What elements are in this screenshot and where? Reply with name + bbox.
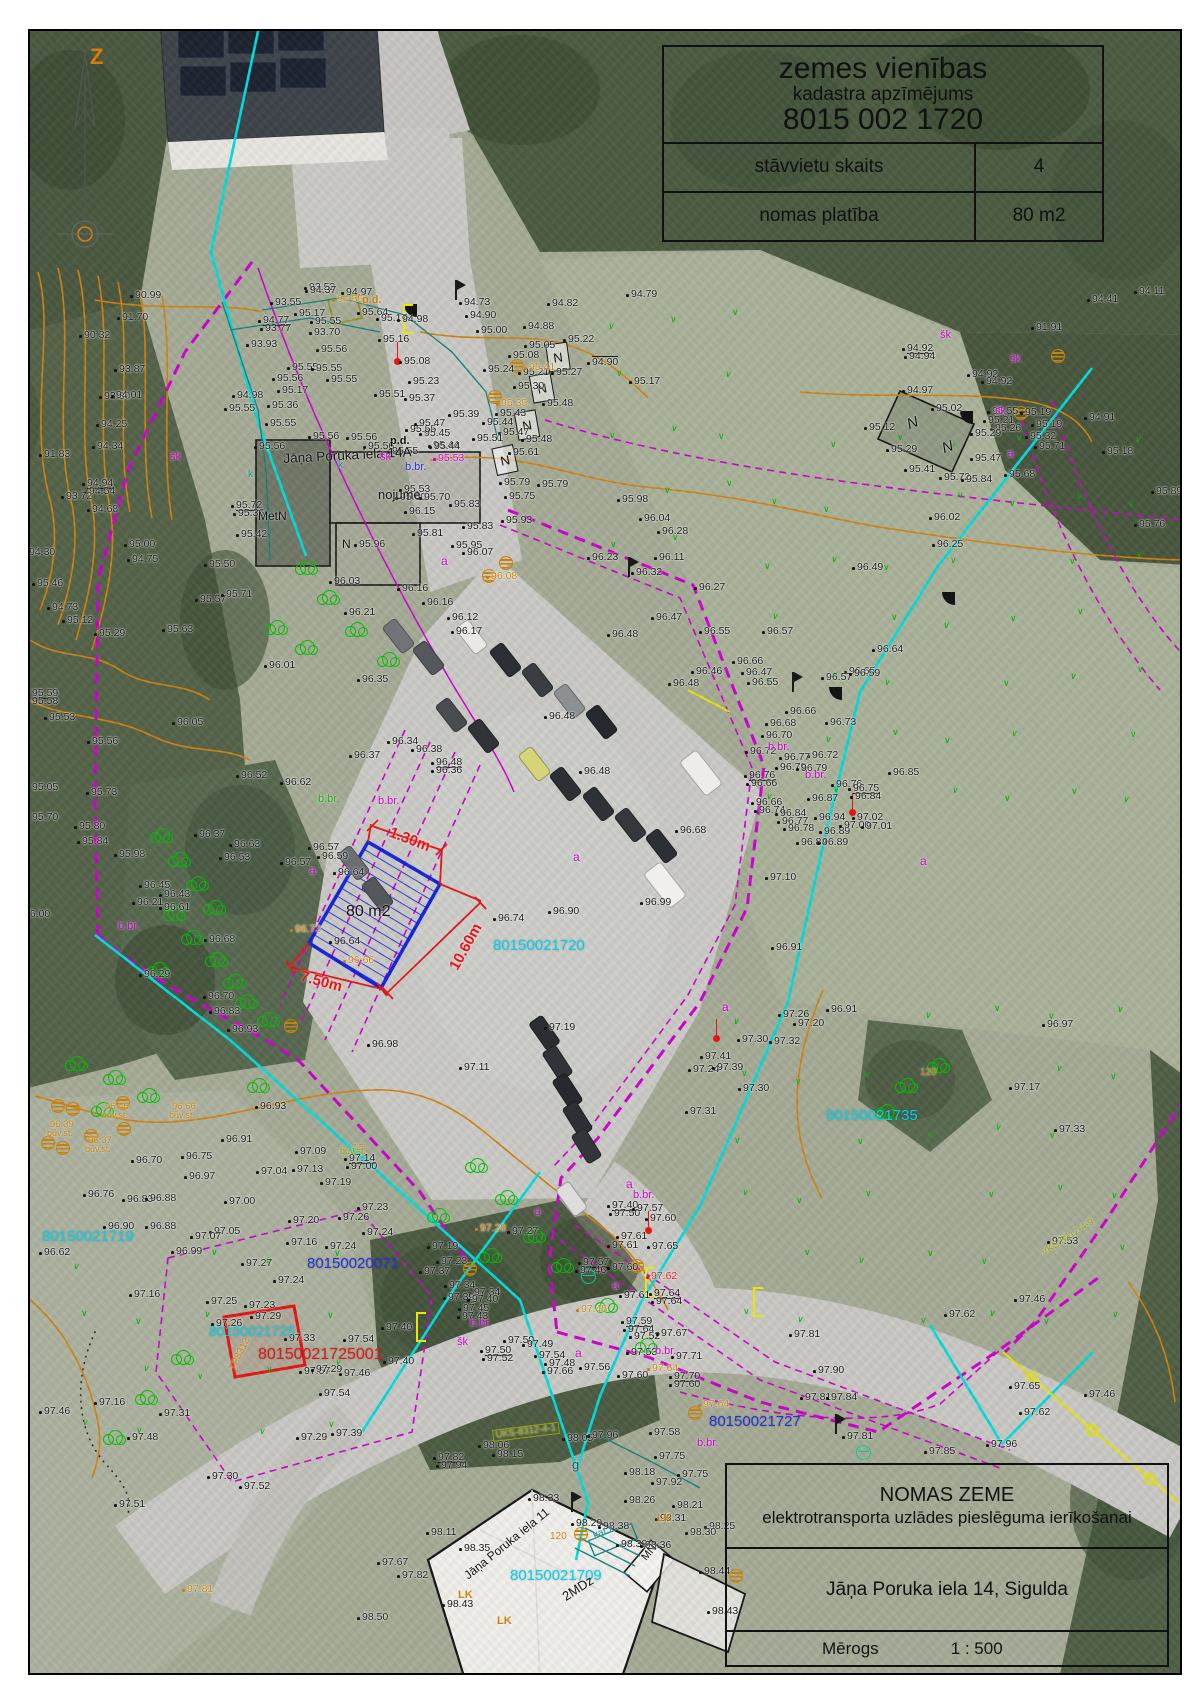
map-text-label: a — [626, 1178, 633, 1190]
elevation-label: 98.11 — [431, 1527, 457, 1537]
elevation-label: 95.08 — [404, 356, 430, 366]
elevation-label: 94.68 — [92, 504, 118, 514]
map-text-label: būv.st. — [102, 1111, 128, 1120]
elevation-label: 96.52 — [241, 770, 267, 780]
map-text-label: b.br. — [318, 794, 339, 805]
elevation-label: 97.31 — [690, 1106, 716, 1116]
elevation-label: 97.26 — [343, 1212, 369, 1222]
map-text-label: LK — [458, 1590, 473, 1601]
elevation-label: 97.92 — [656, 1477, 682, 1487]
elevation-label: 96.93 — [232, 1024, 258, 1034]
info-purpose-line1: NOMAS ZEME — [880, 1483, 1014, 1507]
elevation-label: 97.81 — [847, 1431, 873, 1441]
elevation-label: 93.70 — [314, 327, 340, 337]
map-text-label: būv.st. — [169, 1111, 195, 1120]
elevation-label: 97.39 — [717, 1062, 743, 1072]
map-text-label: b.br. — [768, 742, 789, 753]
elevation-label: 90.99 — [135, 290, 161, 300]
map-text-label: šk — [457, 1337, 468, 1348]
elevation-label: 97.49 — [527, 1339, 553, 1349]
elevation-label: 96.70 — [208, 991, 234, 1001]
elevation-label: 98.21 — [677, 1500, 703, 1510]
map-text-label: UKS-8312-4-1 — [492, 1422, 560, 1442]
cadastral-map-sheet: ∨∨∨∨∨∨∨∨∨∨∨∨∨∨∨∨∨∨∨∨∨∨∨∨∨∨∨∨∨∨∨∨∨∨∨∨∨∨∨∨… — [0, 0, 1190, 1683]
elevation-label: 93.55 — [275, 297, 301, 307]
elevation-label: 96.91 — [776, 942, 802, 952]
elevation-label: 97.29 — [301, 1432, 327, 1442]
elevation-label: 95.63 — [167, 624, 193, 634]
elevation-label: 95.36 — [272, 400, 298, 410]
elevation-label: 96.94 — [819, 812, 845, 822]
title-line1: zemes vienības — [779, 54, 987, 84]
elevation-label: 97.19 — [432, 1241, 458, 1251]
title-block-header: zemes vienības kadastra apzīmējums 8015 … — [664, 47, 1102, 144]
elevation-label: 94.41 — [1092, 294, 1118, 304]
elevation-label: 97.81 — [187, 1584, 213, 1594]
elevation-label: 94.55 — [337, 294, 363, 304]
elevation-label: 96.49 — [857, 562, 883, 572]
elevation-label: 97.01 — [866, 821, 892, 831]
elevation-label: 96.93 — [260, 1101, 286, 1111]
elevation-label: 95.84 — [966, 474, 992, 484]
elevation-label: 96.07 — [467, 547, 493, 557]
elevation-label: 95.56 — [313, 431, 339, 441]
elevation-label: 96.59 — [854, 668, 880, 678]
elevation-label: 96.23 — [592, 552, 618, 562]
elevation-label: 97.94 — [441, 1460, 467, 1470]
elevation-label: 97.67 — [661, 1328, 687, 1338]
elevation-label: 97.96 — [991, 1439, 1017, 1449]
elevation-label: 98.26 — [629, 1495, 655, 1505]
elevation-label: 97.40 — [388, 1356, 414, 1366]
elevation-label: 96.74 — [498, 913, 524, 923]
elevation-label: 94.54 — [89, 486, 115, 496]
elevation-label: 96.32 — [636, 567, 662, 577]
map-text-label: a — [920, 855, 927, 867]
elevation-label: 95.18 — [1107, 446, 1133, 456]
elevation-label: 97.17 — [1014, 1082, 1040, 1092]
elevation-label: 96.97 — [1047, 1019, 1073, 1029]
elevation-label: 96.15 — [409, 506, 435, 516]
elevation-label: 97.23 — [249, 1300, 275, 1310]
parcel-label: 80150021720 — [493, 938, 585, 953]
elevation-label: 95.19 — [1036, 419, 1062, 429]
elevation-label: 95.44 — [434, 441, 460, 451]
elevation-label: 95.55 — [292, 362, 318, 372]
map-labels-layer: 90.9993.5290.3291.7093.7093.3093.8794.01… — [28, 29, 1182, 1675]
elevation-label: 96.66 — [751, 778, 777, 788]
elevation-label: 96.64 — [877, 644, 903, 654]
elevation-label: 97.52 — [244, 1481, 270, 1491]
elevation-label: 96.62 — [285, 777, 311, 787]
elevation-label: 95.73 — [91, 787, 117, 797]
map-text-label: b.br. — [697, 1438, 718, 1449]
elevation-label: 95.55 — [331, 374, 357, 384]
elevation-label: 97.32 — [774, 1036, 800, 1046]
elevation-label: 95.51 — [477, 433, 503, 443]
map-text-label: MetN — [258, 510, 287, 522]
elevation-label: 95.83 — [467, 521, 493, 531]
elevation-label: 96.70 — [136, 1155, 162, 1165]
elevation-label: 91.70 — [122, 312, 148, 322]
elevation-label: 97.62 — [651, 1271, 677, 1281]
elevation-label: 96.88 — [150, 1221, 176, 1231]
elevation-label: 98.30 — [690, 1527, 716, 1537]
elevation-label: 97.62 — [1024, 1407, 1050, 1417]
elevation-label: 95.98 — [119, 849, 145, 859]
elevation-label: 95.96 — [359, 539, 385, 549]
elevation-label: 98.32 — [621, 1539, 647, 1549]
elevation-label: 96.76 — [88, 1189, 114, 1199]
map-text-label: a — [441, 555, 448, 567]
elevation-label: 96.66 — [790, 706, 816, 716]
map-text-label: būv.st. — [340, 1147, 366, 1156]
elevation-label: 96.11 — [659, 552, 685, 562]
elevation-label: 91.91 — [1036, 322, 1062, 332]
elevation-label: 97.10 — [770, 872, 796, 882]
elevation-label: 97.54 — [348, 1334, 374, 1344]
elevation-label: 94.34 — [97, 441, 123, 451]
elevation-label: 96.83 — [214, 1006, 240, 1016]
map-text-label: a — [722, 1001, 729, 1013]
map-text-label: b.br. — [470, 1318, 491, 1329]
map-text-label: LK — [497, 1616, 512, 1627]
info-purpose-line2: elektrotransporta uzlādes pieslēguma ier… — [762, 1507, 1131, 1529]
elevation-label: 95.84 — [82, 836, 108, 846]
elevation-label: 95.56 — [92, 736, 118, 746]
elevation-label: 95.12 — [67, 615, 93, 625]
elevation-label: 94.91 — [1089, 412, 1115, 422]
elevation-label: 94.97 — [907, 385, 933, 395]
elevation-label: 96.73 — [295, 924, 321, 934]
elevation-label: 97.90 — [818, 1365, 844, 1375]
elevation-label: 96.99 — [176, 1246, 202, 1256]
elevation-label: 96.21 — [349, 607, 375, 617]
elevation-label: 96.47 — [656, 612, 682, 622]
elevation-label: 96.25 — [937, 539, 963, 549]
elevation-label: 97.71 — [676, 1351, 702, 1361]
elevation-label: 95.02 — [936, 403, 962, 413]
map-frame: ∨∨∨∨∨∨∨∨∨∨∨∨∨∨∨∨∨∨∨∨∨∨∨∨∨∨∨∨∨∨∨∨∨∨∨∨∨∨∨∨… — [28, 29, 1182, 1675]
elevation-label: 95.53 — [49, 712, 75, 722]
elevation-label: 95.29 — [99, 628, 125, 638]
elevation-label: 97.45 — [581, 1304, 607, 1314]
elevation-label: 95.27 — [556, 367, 582, 377]
elevation-label: 97.46 — [580, 1265, 606, 1275]
elevation-label: 95.79 — [504, 477, 530, 487]
map-text-label: LK — [657, 1513, 672, 1524]
elevation-label: 97.31 — [164, 1408, 190, 1418]
elevation-label: 95.29 — [975, 428, 1001, 438]
scale-label: Mērogs — [822, 1639, 879, 1659]
elevation-label: 96.70 — [766, 730, 792, 740]
elevation-label: 97.04 — [261, 1166, 287, 1176]
elevation-label: 95.48 — [526, 434, 552, 444]
elevation-label: 95.08 — [513, 350, 539, 360]
elevation-label: 94.73 — [52, 602, 78, 612]
info-purpose: NOMAS ZEME elektrotransporta uzlādes pie… — [727, 1465, 1167, 1549]
elevation-label: 94.98 — [402, 314, 428, 324]
elevation-label: 94.88 — [528, 321, 554, 331]
elevation-label: 95.22 — [568, 334, 594, 344]
elevation-label: 95.47 — [419, 418, 445, 428]
elevation-label: 95.51 — [379, 389, 405, 399]
elevation-label: 94.79 — [631, 289, 657, 299]
elevation-label: 97.85 — [929, 1446, 955, 1456]
elevation-label: 97.39 — [448, 1292, 474, 1302]
elevation-label: 96.01 — [269, 660, 295, 670]
map-text-label: TP8312 — [228, 1337, 252, 1373]
map-text-label: VKS-8312-4-9 — [1040, 1217, 1096, 1258]
elevation-label: 96.68 — [770, 718, 796, 728]
elevation-label: 93.77 — [265, 323, 291, 333]
map-text-label: a — [534, 1205, 541, 1217]
elevation-label: 98.15 — [497, 1449, 523, 1459]
elevation-label: 97.24 — [330, 1241, 356, 1251]
elevation-label: 94.90 — [470, 310, 496, 320]
elevation-label: 95.23 — [413, 376, 439, 386]
elevation-label: 97.41 — [705, 1051, 731, 1061]
elevation-label: 96.04 — [644, 513, 670, 523]
elevation-label: 95.17 — [634, 376, 660, 386]
elevation-label: 97.16 — [134, 1289, 160, 1299]
elevation-label: 96.48 — [549, 711, 575, 721]
elevation-label: 97.20 — [293, 1215, 319, 1225]
elevation-label: 95.42 — [241, 529, 267, 539]
cadastral-number: 8015 002 1720 — [783, 105, 983, 135]
elevation-label: 93.72 — [66, 491, 92, 501]
map-text-label: N — [342, 538, 351, 550]
elevation-label: 97.39 — [336, 1428, 362, 1438]
parking-count-value: 4 — [974, 144, 1102, 191]
elevation-label: 95.37 — [409, 393, 435, 403]
elevation-label: 95.50 — [209, 559, 235, 569]
lease-area-label: nomas platība — [664, 193, 974, 240]
elevation-label: 98.18 — [629, 1467, 655, 1477]
elevation-label: 96.37 — [354, 750, 380, 760]
elevation-label: 97.51 — [119, 1499, 145, 1509]
map-text-label: a — [575, 1347, 582, 1359]
elevation-label: 97.48 — [132, 1432, 158, 1442]
elevation-label: 96.48 — [584, 766, 610, 776]
map-text-label: šk — [1010, 354, 1021, 365]
elevation-label: 97.00 — [229, 1196, 255, 1206]
elevation-label: 93.87 — [119, 364, 145, 374]
map-text-label: šk — [380, 452, 391, 463]
elevation-label: 97.54 — [324, 1388, 350, 1398]
elevation-label: 97.20 — [798, 1018, 824, 1028]
elevation-label: 95.56 — [321, 344, 347, 354]
elevation-label: 97.53 — [631, 1347, 657, 1357]
elevation-label: 96.66 — [737, 656, 763, 666]
elevation-label: 97.30 — [742, 1034, 768, 1044]
elevation-label: 94.25 — [101, 419, 127, 429]
map-text-label: b.br. — [405, 462, 426, 473]
elevation-label: 96.68 — [209, 934, 235, 944]
elevation-label: 97.64 — [656, 1296, 682, 1306]
elevation-label: 95.55 — [229, 403, 255, 413]
elevation-label: 96.64 — [338, 867, 364, 877]
elevation-label: 95.19 — [1025, 407, 1051, 417]
elevation-label: 96.35 — [362, 674, 388, 684]
elevation-label: 95.30 — [518, 381, 544, 391]
elevation-label: 95.46 — [37, 578, 63, 588]
elevation-label: 96.57 — [767, 626, 793, 636]
elevation-label: 95.89 — [1156, 486, 1182, 496]
elevation-label: 96.03 — [334, 576, 360, 586]
elevation-label: 97.60 — [674, 1379, 700, 1389]
elevation-label: 96.85 — [893, 767, 919, 777]
parcel-label: 80150020071 — [307, 1256, 399, 1271]
elevation-label: 97.96 — [592, 1430, 618, 1440]
map-text-label: N — [940, 438, 955, 456]
elevation-label: 96.78 — [788, 823, 814, 833]
elevation-label: 97.82 — [402, 1570, 428, 1580]
elevation-label: 95.71 — [226, 589, 252, 599]
elevation-label: 95.16 — [383, 334, 409, 344]
elevation-label: 97.52 — [487, 1353, 513, 1363]
elevation-label: 97.64 — [703, 1399, 729, 1409]
elevation-label: 97.61 — [612, 1240, 638, 1250]
title-line2: kadastra apzīmējums — [793, 84, 974, 105]
scale-value: 1 : 500 — [951, 1639, 1003, 1659]
parking-count-label: stāvvietu skaits — [664, 144, 974, 191]
elevation-label: 97.46 — [344, 1368, 370, 1378]
elevation-label: 96.61 — [164, 902, 190, 912]
elevation-label: 95.58 — [32, 696, 58, 706]
elevation-label: 96.17 — [456, 626, 482, 636]
map-text-label: p.d. — [390, 436, 410, 447]
elevation-label: 97.30 — [212, 1471, 238, 1481]
elevation-label: 95.29 — [891, 444, 917, 454]
elevation-label: 96.72 — [812, 750, 838, 760]
title-row-area: nomas platība 80 m2 — [664, 191, 1102, 240]
elevation-label: 97.24 — [693, 1064, 719, 1074]
elevation-label: 95.56 — [259, 441, 285, 451]
elevation-label: 94.94 — [909, 351, 935, 361]
elevation-label: 96.63 — [234, 839, 260, 849]
elevation-label: 97.07 — [195, 1231, 221, 1241]
elevation-label: 95.61 — [513, 447, 539, 457]
elevation-label: 96.21 — [137, 897, 163, 907]
elevation-label: 95.68 — [1009, 469, 1035, 479]
map-text-label: būv.st. — [85, 1145, 111, 1154]
elevation-label: 97.27 — [246, 1258, 272, 1268]
map-text-label: p.d. — [362, 295, 382, 306]
elevation-label: 96.53 — [224, 852, 250, 862]
elevation-label: 95.56 — [277, 373, 303, 383]
elevation-label: 95.98 — [622, 494, 648, 504]
map-text-label: a — [573, 851, 580, 863]
elevation-label: 97.60 — [612, 1262, 638, 1272]
map-text-label: k — [248, 470, 253, 480]
elevation-label: 95.70 — [32, 812, 58, 822]
elevation-label: 97.81 — [794, 1329, 820, 1339]
elevation-label: 97.75 — [659, 1451, 685, 1461]
elevation-label: 96.28 — [662, 526, 688, 536]
elevation-label: 96.99 — [645, 897, 671, 907]
elevation-label: 96.16 — [402, 583, 428, 593]
elevation-label: 90.32 — [84, 330, 110, 340]
elevation-label: 96.12 — [452, 612, 478, 622]
map-text-label: g — [572, 1458, 579, 1471]
info-scale-row: Mērogs 1 : 500 — [727, 1632, 1167, 1665]
map-text-label: šk — [995, 406, 1006, 417]
map-text-label: 120 — [550, 1532, 567, 1542]
elevation-label: 95.81 — [417, 528, 443, 538]
elevation-label: 97.66 — [547, 1366, 573, 1376]
elevation-label: 91.83 — [44, 449, 70, 459]
elevation-label: 97.34 — [449, 1280, 475, 1290]
elevation-label: 95.70 — [424, 492, 450, 502]
elevation-label: 96.05 — [177, 717, 203, 727]
elevation-label: 96.90 — [553, 906, 579, 916]
map-text-label: šk — [940, 330, 951, 341]
elevation-label: 95.47 — [975, 453, 1001, 463]
elevation-label: 95.79 — [542, 479, 568, 489]
elevation-label: 96.34 — [392, 736, 418, 746]
elevation-label: 94.01 — [116, 390, 142, 400]
elevation-label: 96.88 — [150, 1193, 176, 1203]
elevation-label: 96.75 — [186, 1151, 212, 1161]
elevation-label: 97.24 — [367, 1227, 393, 1237]
map-text-label: b.br. — [378, 796, 399, 807]
elevation-label: 97.00 — [351, 1161, 377, 1171]
lease-area-size-label: 80 m2 — [346, 903, 390, 921]
parcel-label: 80150021719 — [42, 1229, 134, 1244]
map-text-label: N — [905, 414, 920, 432]
elevation-label: 97.58 — [654, 1427, 680, 1437]
elevation-label: 97.25 — [211, 1296, 237, 1306]
elevation-label: 96.73 — [830, 717, 856, 727]
elevation-label: 94.73 — [464, 297, 490, 307]
elevation-label: 96.91 — [831, 1004, 857, 1014]
elevation-label: 96.68 — [680, 825, 706, 835]
elevation-label: 96.55 — [704, 626, 730, 636]
elevation-label: 97.61 — [624, 1290, 650, 1300]
elevation-label: 95.80 — [79, 821, 105, 831]
elevation-label: 93.93 — [251, 339, 277, 349]
elevation-label: 97.56 — [584, 1362, 610, 1372]
elevation-label: 96.59 — [322, 851, 348, 861]
elevation-label: 97.16 — [99, 1397, 125, 1407]
elevation-label: 96.46 — [696, 666, 722, 676]
elevation-label: 96.84 — [855, 791, 881, 801]
elevation-label: 96.27 — [699, 582, 725, 592]
info-address: Jāņa Poruka iela 14, Sigulda — [727, 1549, 1167, 1632]
elevation-label: 96.91 — [226, 1134, 252, 1144]
elevation-label: 94.98 — [237, 390, 263, 400]
map-text-label: 120 — [920, 1068, 937, 1078]
elevation-label: 96.37 — [199, 829, 225, 839]
elevation-label: 97.75 — [682, 1469, 708, 1479]
north-arrow-icon — [52, 42, 122, 282]
lease-area-value: 80 m2 — [974, 193, 1102, 240]
elevation-label: 96.08 — [491, 571, 517, 581]
elevation-label: 96.16 — [427, 597, 453, 607]
elevation-label: 94.30 — [29, 547, 55, 557]
elevation-label: 97.28 — [480, 1223, 506, 1233]
elevation-label: 96.98 — [372, 1039, 398, 1049]
elevation-label: 97.19 — [549, 1022, 575, 1032]
map-text-label: b.br. — [805, 770, 826, 781]
map-text-label: k — [338, 461, 343, 471]
elevation-label: 95.83 — [454, 499, 480, 509]
elevation-label: 94.90 — [592, 356, 618, 367]
elevation-label: 96.29 — [144, 969, 170, 979]
elevation-label: 96.48 — [673, 678, 699, 688]
elevation-label: 97.13 — [297, 1164, 323, 1174]
